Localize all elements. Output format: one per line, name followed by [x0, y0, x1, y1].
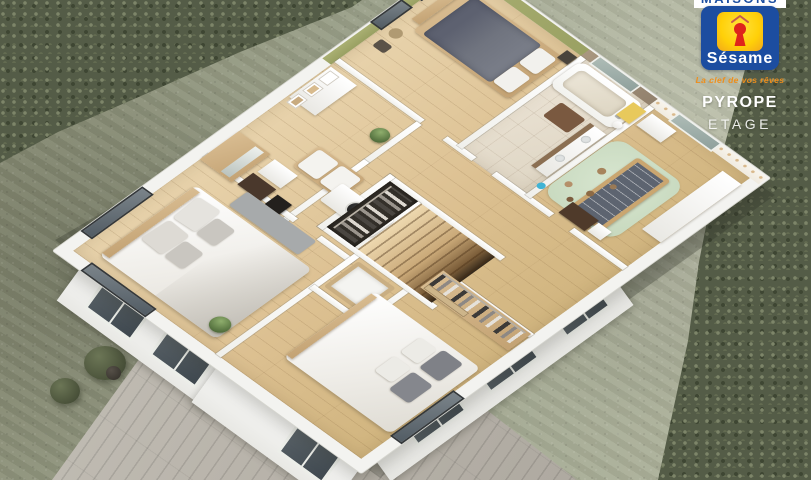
brand-name: Sésame: [701, 50, 779, 68]
brand-block: MAISONS Sésame La clef de vos rêves PYRO…: [690, 0, 790, 132]
keyhole-badge: [717, 12, 763, 51]
garden-shrub: [50, 378, 80, 404]
brand-tagline: La clef de vos rêves: [690, 75, 790, 85]
floor-label: ETAGE: [690, 116, 790, 132]
garden-pot: [106, 366, 121, 380]
keyhole-icon: [717, 12, 763, 51]
brand-logo: Sésame: [701, 6, 779, 70]
floorplan-render-stage: MAISONS Sésame La clef de vos rêves PYRO…: [0, 0, 811, 480]
project-name: PYROPE: [690, 94, 790, 112]
